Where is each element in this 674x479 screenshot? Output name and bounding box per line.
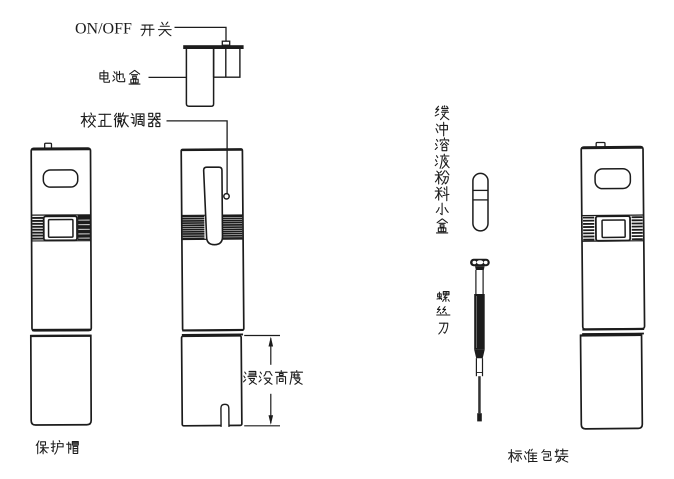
svg-text:ON/OFF: ON/OFF	[75, 21, 132, 38]
